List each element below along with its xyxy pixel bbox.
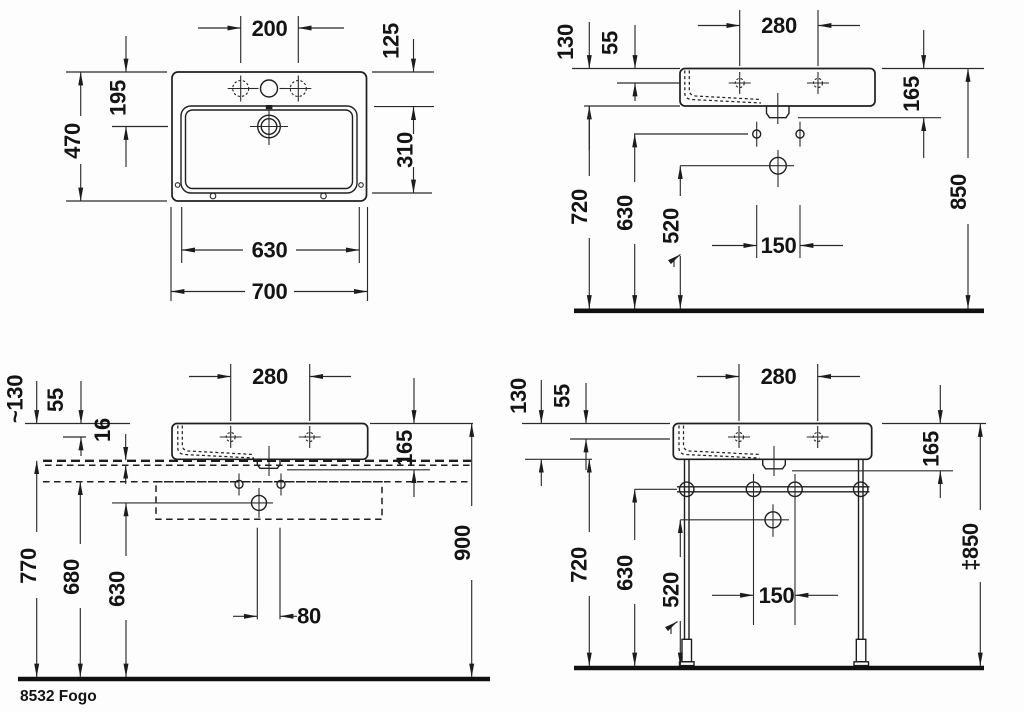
dim-150-label: 150	[759, 583, 795, 608]
dim-200-label: 200	[252, 16, 288, 41]
dim-520-label: 520	[659, 208, 684, 244]
technical-drawing-sheet: 200 125 195 470 310 630 700	[0, 0, 1024, 712]
rail-clamp-left	[680, 482, 694, 496]
side-mark-right	[359, 183, 364, 188]
dim-165-label: 165	[899, 76, 924, 112]
fixing-mark-right	[321, 193, 327, 199]
dim-125-label: 125	[379, 23, 404, 59]
dim-130-label: 130	[506, 378, 531, 414]
center-tap-hole	[261, 80, 278, 97]
bowl-contour-dashed	[685, 71, 761, 104]
plan-dimension-labels: 200 125 195 470 310 630 700	[60, 16, 418, 304]
plan-view: 200 125 195 470 310 630 700	[60, 16, 434, 304]
wall-dimension-labels: 280 130 55 165 720 630 520 150 850	[553, 13, 971, 258]
dim-130-label: ~130	[3, 375, 28, 423]
dim-55-label: 55	[43, 388, 68, 412]
fixing-mark-left	[210, 193, 216, 199]
drain-direction-arrow-icon	[671, 622, 678, 635]
console-tap-holes	[220, 426, 321, 448]
console-basin-body	[172, 424, 368, 477]
dim-850-label: 850	[946, 174, 971, 210]
console-cutout-box	[156, 482, 382, 520]
front-console-view: 280 ~130 55 16 165 770 680 630 80 900 85…	[3, 364, 491, 705]
dim-280-label: 280	[761, 13, 797, 38]
washbasin-dimension-drawing: 200 125 195 470 310 630 700	[0, 0, 1024, 712]
right-foot	[856, 639, 866, 662]
dim-150-label: 150	[761, 233, 797, 258]
left-foot	[682, 639, 692, 662]
dim-16-label: 16	[90, 418, 115, 442]
dim-55-label: 55	[598, 31, 623, 55]
dim-630-label: 630	[105, 571, 130, 607]
wall-tap-holes	[729, 72, 829, 94]
stand-frame	[677, 459, 870, 665]
dim-900-label: 900	[450, 525, 475, 561]
dim-720-label: 720	[567, 189, 592, 225]
dim-55-label: 55	[550, 384, 575, 408]
dim-165-label: 165	[919, 431, 944, 467]
dim-700-label: 700	[252, 279, 288, 304]
rail-clamp-right	[854, 482, 868, 496]
front-wall-view: 280 130 55 165 720 630 520 150 850	[553, 10, 984, 311]
plan-drain	[250, 108, 288, 145]
dim-195-label: 195	[106, 80, 131, 116]
dim-630-label: 630	[613, 195, 638, 231]
wall-drain-trap	[680, 150, 794, 187]
product-label: 8532 Fogo	[20, 688, 97, 705]
stand-tap-holes	[728, 426, 829, 448]
dim-630-label: 630	[252, 238, 288, 263]
dim-165-label: 165	[392, 430, 417, 466]
console-fixing-holes	[235, 474, 285, 496]
dim-80-label: 80	[297, 604, 321, 629]
dim-630-label: 630	[613, 555, 638, 591]
front-stand-view: 280 130 55 165 720 630 520 150 ‡850	[506, 364, 986, 668]
dim-680-label: 680	[59, 559, 84, 595]
console-drain-trap	[112, 488, 273, 518]
dim-130-label: 130	[553, 24, 578, 60]
plan-tap-holes	[228, 76, 312, 102]
dim-280-label: 280	[252, 364, 288, 389]
side-mark-left	[175, 183, 180, 188]
console-dimension-labels: 280 ~130 55 16 165 770 680 630 80 900	[3, 364, 476, 629]
drain-direction-arrow-icon	[674, 255, 681, 268]
dim-280-label: 280	[761, 364, 797, 389]
dim-520-label: 520	[659, 572, 684, 608]
stand-dimension-labels: 280 130 55 165 720 630 520 150 ‡850	[506, 364, 983, 608]
dim-310-label: 310	[393, 132, 418, 168]
dim-850-label: ‡850	[958, 523, 983, 571]
wall-basin-body	[680, 69, 875, 125]
stand-basin-body	[673, 424, 871, 477]
dim-720-label: 720	[567, 547, 592, 583]
dim-770-label: 770	[16, 548, 41, 584]
dim-470-label: 470	[60, 123, 85, 159]
console-dimension-lines	[25, 364, 473, 677]
